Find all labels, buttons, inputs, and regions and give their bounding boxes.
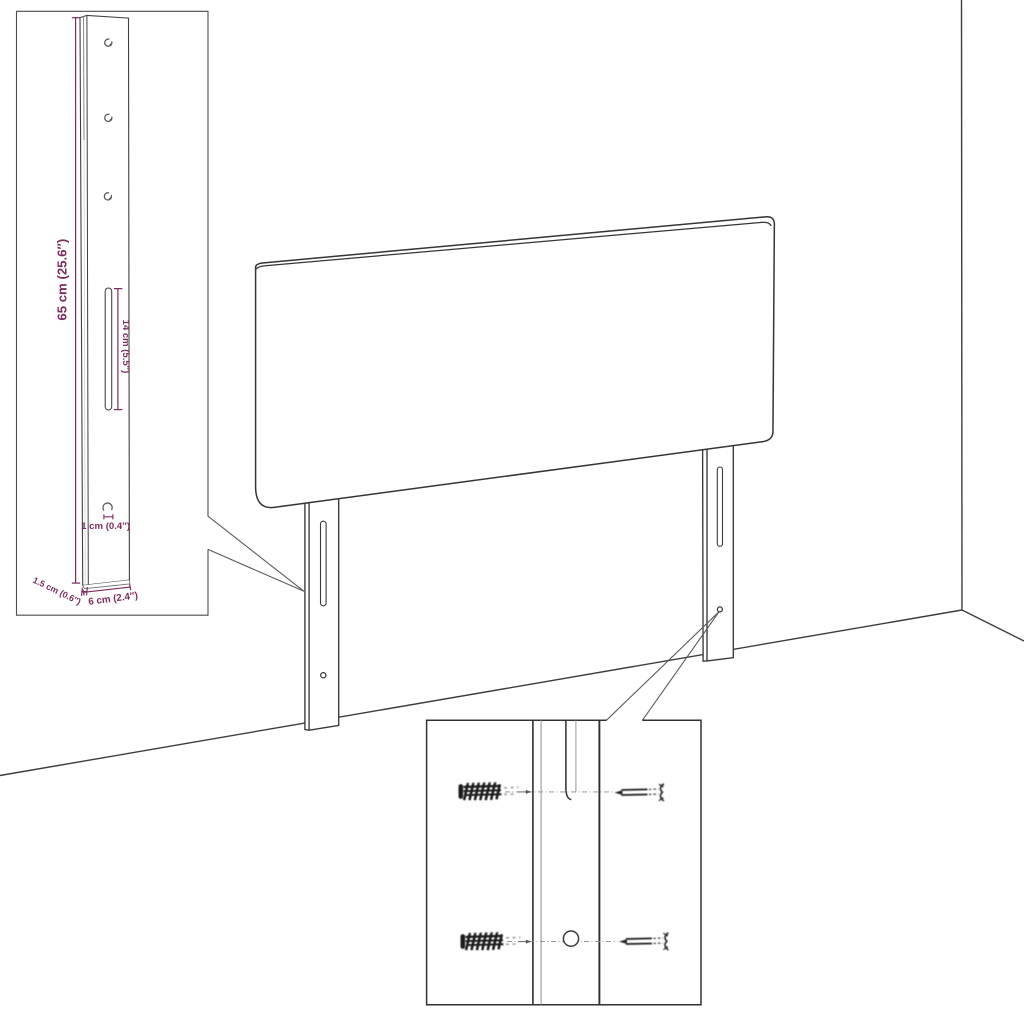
- svg-text:14 cm (5.5″): 14 cm (5.5″): [120, 320, 131, 374]
- svg-text:1 cm (0.4″): 1 cm (0.4″): [81, 521, 130, 532]
- svg-text:65 cm (25.6″): 65 cm (25.6″): [54, 239, 69, 321]
